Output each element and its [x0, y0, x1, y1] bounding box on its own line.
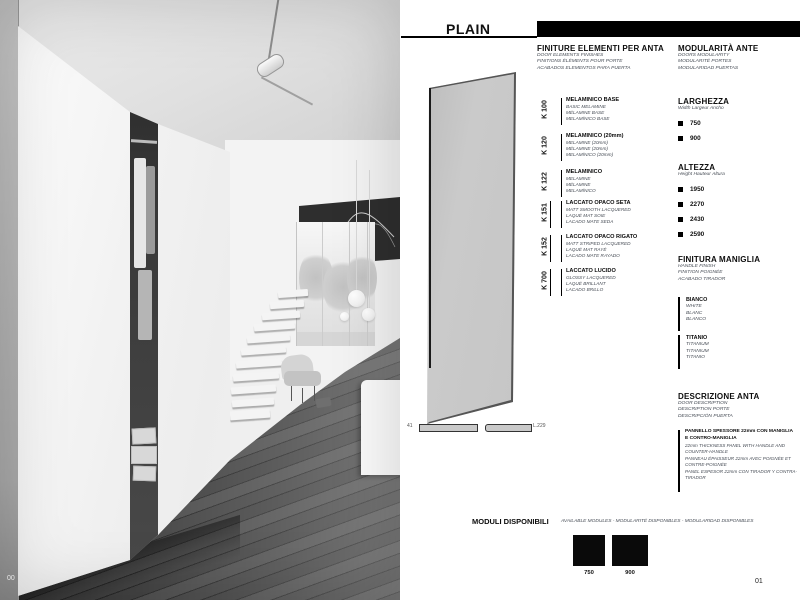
description-bar	[678, 430, 680, 492]
black-square-bullet	[678, 121, 683, 126]
width-option: 750	[678, 120, 798, 127]
handle-finish-titanio: TITANIO TITANIUM TITANIUM TITANIO	[678, 335, 798, 361]
finish-item: K 120 MELAMINICO (20mm) MELAMINE (20mm) …	[537, 133, 675, 158]
door-description-body: PANNELLO SPESSORE 22mm CON MANIGLIA E CO…	[678, 429, 797, 481]
finish-item: K 151 LACCATO OPACO SETA MATT SMOOTH LAC…	[537, 200, 675, 225]
door-handle-edge	[429, 88, 431, 368]
finish-tr: LACADO BRILLO	[566, 287, 675, 293]
width-value: 750	[690, 120, 701, 127]
handle-finish-tr: BLANCO	[686, 317, 798, 323]
finiture-title: FINITURE ELEMENTI PER ANTA	[537, 44, 677, 53]
black-square-bullet	[678, 136, 683, 141]
finish-rule	[550, 201, 551, 228]
description-es: PANEL ESPESOR 22mm CON TIRADOR Y CONTRA-…	[685, 469, 797, 481]
width-option: 900	[678, 135, 798, 142]
height-option: 2590	[678, 231, 798, 238]
height-option: 2270	[678, 201, 798, 208]
maniglia-title: FINITURA MANIGLIA	[678, 255, 798, 264]
finiture-sub-es: ACABADOS ELEMENTOS PARA PUERTA	[537, 66, 677, 72]
section-bar-left	[419, 424, 478, 432]
description-it: PANNELLO SPESSORE 22mm CON MANIGLIA E CO…	[685, 429, 797, 442]
finish-name: MELAMINICO (20mm)	[566, 133, 675, 139]
modularita-title: MODULARITÀ ANTE	[678, 44, 798, 53]
finish-tr: MELAMÍNICO BASE	[566, 116, 675, 122]
finish-tr: LACADO MATE SEDA	[566, 219, 675, 225]
swatch-bar	[678, 297, 680, 331]
black-square-bullet	[678, 202, 683, 207]
finish-name: MELAMINICO BASE	[566, 97, 675, 103]
page-title: PLAIN	[446, 21, 491, 37]
catalog-page: 00 PLAIN 41 L.229 FINITURE ELEMENTI PER …	[0, 0, 800, 600]
finish-name: LACCATO OPACO SETA	[566, 200, 675, 206]
moduli-title: MODULI DISPONIBILI	[472, 517, 549, 526]
finish-rule	[561, 170, 562, 197]
black-square-bullet	[678, 187, 683, 192]
module-swatch-750	[573, 535, 605, 566]
moduli-subtitle: AVAILABLE MODULES - MODULARITÉ DISPONIBL…	[561, 519, 796, 524]
finish-code: K 100	[542, 93, 549, 127]
finish-code: K 151	[542, 196, 549, 230]
finish-tr: LACADO MATE RAYADO	[566, 253, 675, 259]
section-bar-right	[485, 424, 532, 432]
height-option: 1950	[678, 186, 798, 193]
section-dim-left: 41	[407, 423, 413, 429]
height-value: 1950	[690, 186, 704, 193]
photo-vignette	[0, 0, 400, 600]
finish-rule	[561, 201, 562, 228]
finish-code: K 122	[542, 165, 549, 199]
larghezza-sub: Width Largeur Ancho	[678, 106, 798, 112]
finish-name: MELAMINICO	[566, 169, 675, 175]
larghezza-title: LARGHEZZA	[678, 97, 798, 106]
interior-photo: 00	[0, 0, 400, 600]
altezza-sub: Height Hauteur Altura	[678, 172, 798, 178]
finish-rule	[561, 235, 562, 262]
swatch-bar	[678, 335, 680, 369]
modularita-sub-es: MODULARIDAD PUERTAS	[678, 66, 798, 72]
finish-code: K 152	[542, 230, 549, 264]
finish-code: K 700	[542, 264, 549, 298]
handle-finish-tr: TITANIO	[686, 355, 798, 361]
finish-rule	[561, 134, 562, 161]
altezza-title: ALTEZZA	[678, 163, 798, 172]
page-number-right: 01	[755, 578, 763, 585]
description-fr: PANNEAU ÉPAISSEUR 22mm AVEC POIGNÉE ET C…	[685, 456, 797, 468]
section-dim-right: L.229	[533, 423, 546, 429]
finish-tr: MELAMÍNICO	[566, 188, 675, 194]
finish-code: K 120	[542, 129, 549, 163]
finish-name: LACCATO OPACO RIGATO	[566, 234, 675, 240]
finish-item: K 152 LACCATO OPACO RIGATO MATT STRIPED …	[537, 234, 675, 259]
handle-finish-name: BIANCO	[686, 297, 798, 303]
maniglia-sub-es: ACABADO TIRADOR	[678, 277, 798, 283]
header-black-bar	[537, 21, 800, 37]
descrizione-sub-es: DESCRIPCIÓN PUERTA	[678, 414, 798, 420]
finish-item: K 122 MELAMINICO MELAMINE MÉLAMINE MELAM…	[537, 169, 675, 194]
height-value: 2430	[690, 216, 704, 223]
height-value: 2270	[690, 201, 704, 208]
finish-item: K 700 LACCATO LUCIDO GLOSSY LACQUERED LA…	[537, 268, 675, 293]
height-value: 2590	[690, 231, 704, 238]
finish-rule	[550, 269, 551, 296]
description-en: 22mm THICKNESS PANEL WITH HANDLE AND COU…	[685, 443, 797, 455]
width-value: 900	[690, 135, 701, 142]
module-swatch-900	[612, 535, 648, 566]
finish-rule	[550, 235, 551, 262]
black-square-bullet	[678, 217, 683, 222]
finish-item: K 100 MELAMINICO BASE BASIC MELAMINE MÉL…	[537, 97, 675, 122]
descrizione-title: DESCRIZIONE ANTA	[678, 392, 798, 401]
finish-rule	[561, 98, 562, 125]
finish-tr: MELAMÍNICO (20mm)	[566, 152, 675, 158]
finish-name: LACCATO LUCIDO	[566, 268, 675, 274]
page-number-left: 00	[7, 575, 15, 582]
module-label: 900	[612, 570, 648, 576]
door-panel-diagram	[427, 72, 516, 428]
handle-finish-name: TITANIO	[686, 335, 798, 341]
handle-finish-bianco: BIANCO WHITE BLANC BLANCO	[678, 297, 798, 323]
finish-rule	[561, 269, 562, 296]
black-square-bullet	[678, 232, 683, 237]
module-label: 750	[573, 570, 605, 576]
height-option: 2430	[678, 216, 798, 223]
